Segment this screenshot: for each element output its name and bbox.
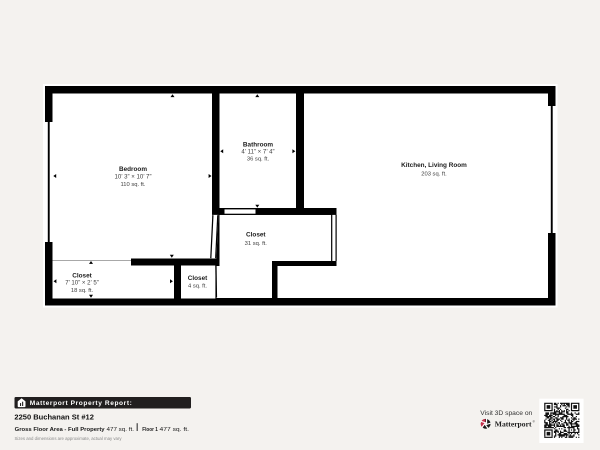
svg-text:Matterport: Matterport [495, 420, 532, 429]
svg-text:110 sq. ft.: 110 sq. ft. [120, 182, 145, 188]
svg-text:Sizes and dimensions are appro: Sizes and dimensions are approximate, ac… [15, 436, 123, 441]
svg-text:Gross Floor Area - Full Proper: Gross Floor Area - Full Property477 sq. … [15, 427, 190, 433]
svg-text:Kitchen, Living Room: Kitchen, Living Room [401, 162, 467, 169]
svg-text:Bathroom: Bathroom [243, 141, 273, 148]
svg-text:®: ® [533, 420, 536, 424]
svg-text:7’ 10” × 2’ 5”: 7’ 10” × 2’ 5” [65, 280, 99, 287]
svg-text:Closet: Closet [188, 275, 208, 282]
svg-text:Matterport Property Report:: Matterport Property Report: [30, 400, 132, 407]
svg-text:Closet: Closet [246, 231, 266, 238]
svg-text:4 sq. ft.: 4 sq. ft. [188, 283, 207, 289]
svg-text:203 sq. ft.: 203 sq. ft. [421, 172, 447, 178]
svg-text:4’ 11” × 7’ 4”: 4’ 11” × 7’ 4” [241, 149, 274, 156]
svg-text:18 sq. ft.: 18 sq. ft. [71, 288, 94, 294]
svg-text:10’ 3” × 10’ 7”: 10’ 3” × 10’ 7” [115, 174, 152, 181]
svg-text:36 sq. ft.: 36 sq. ft. [247, 157, 270, 163]
svg-text:Visit 3D space on: Visit 3D space on [480, 410, 532, 417]
svg-text:Closet: Closet [72, 273, 92, 280]
svg-text:31 sq. ft.: 31 sq. ft. [245, 241, 268, 247]
svg-text:Bedroom: Bedroom [119, 166, 147, 173]
svg-text:2250 Buchanan St #12: 2250 Buchanan St #12 [14, 412, 94, 421]
